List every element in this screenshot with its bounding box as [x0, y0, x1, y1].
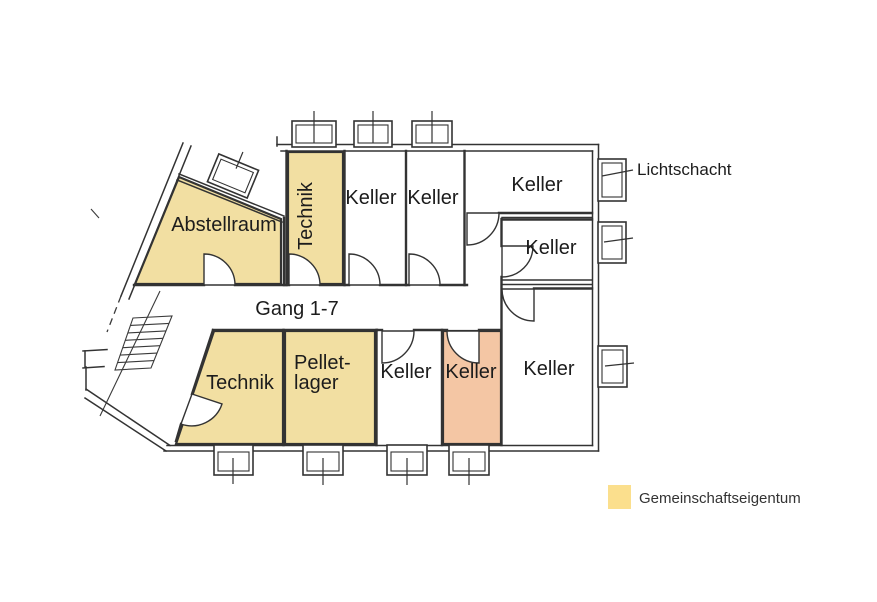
light-shaft-right-3 — [598, 346, 634, 387]
light-shaft-top-1 — [292, 111, 336, 147]
stairs — [100, 291, 172, 416]
light-shaft-bottom-3 — [387, 445, 427, 485]
light-shaft-top-3 — [412, 111, 452, 147]
left-wall-fragments — [83, 209, 121, 390]
label-abstellraum: Abstellraum — [171, 214, 277, 236]
label-gang: Gang 1-7 — [255, 298, 338, 320]
light-shaft-bottom-2 — [303, 445, 343, 485]
light-shaft-slanted — [207, 144, 262, 198]
label-keller-bottom-right: Keller — [523, 358, 574, 380]
label-pelletlager-line1: Pellet- — [294, 352, 351, 374]
light-shaft-bottom-1 — [214, 445, 253, 484]
label-keller-bottom-highlight: Keller — [445, 361, 496, 383]
floor-plan-canvas: Abstellraum Technik Keller Keller Keller… — [0, 0, 877, 602]
label-keller-bottom-white: Keller — [380, 361, 431, 383]
light-shaft-top-2 — [354, 111, 392, 147]
label-technik-top: Technik — [295, 181, 317, 250]
legend-swatch — [608, 485, 631, 509]
door-keller-top-1 — [349, 254, 380, 285]
light-shaft-right-1 — [598, 159, 626, 201]
door-keller-bottom-white — [382, 331, 414, 363]
light-shaft-right-2 — [598, 222, 633, 263]
door-keller-top-2 — [409, 254, 440, 285]
door-keller-top-right — [467, 213, 499, 245]
label-keller-right-2: Keller — [525, 237, 576, 259]
label-keller-top-2: Keller — [407, 187, 458, 209]
door-keller-bottom-right — [502, 289, 534, 321]
label-keller-top-1: Keller — [345, 187, 396, 209]
legend-label: Gemeinschaftseigentum — [639, 490, 801, 507]
light-shaft-bottom-highlight — [449, 445, 489, 485]
label-technik-bottom: Technik — [206, 372, 275, 394]
floor-plan: Abstellraum Technik Keller Keller Keller… — [0, 0, 877, 602]
label-pelletlager-line2: lager — [294, 372, 339, 394]
label-keller-top-right: Keller — [511, 174, 562, 196]
legend: Gemeinschaftseigentum — [608, 485, 801, 509]
label-lichtschacht: Lichtschacht — [637, 160, 732, 179]
